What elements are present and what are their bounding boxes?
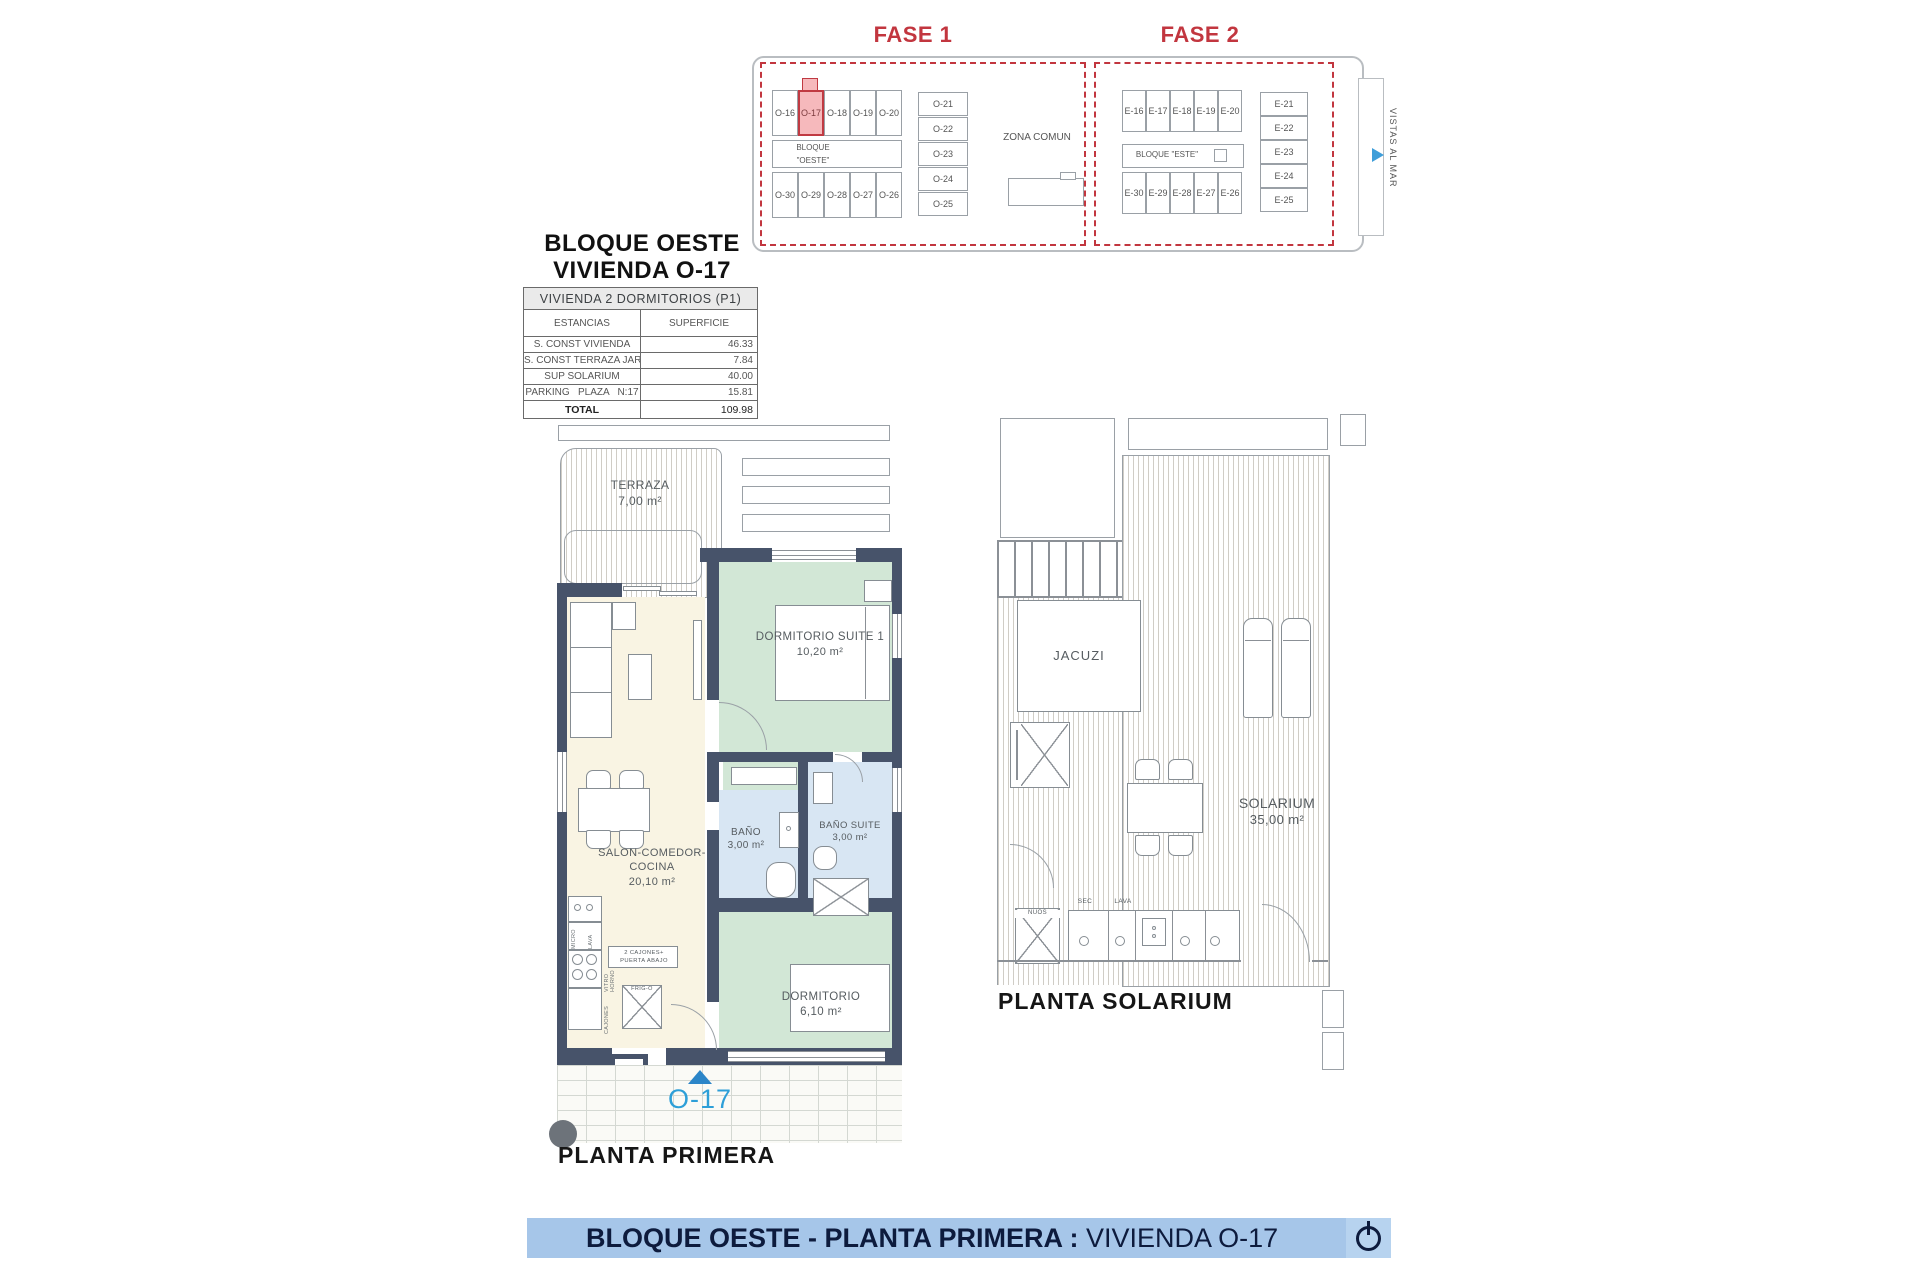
lounger-line — [1245, 640, 1271, 641]
dining-chair — [619, 770, 644, 789]
table-row: SUP SOLARIUM 40.00 — [524, 369, 758, 385]
appliance-dot — [1152, 926, 1156, 930]
site-unit-cell: E-30 — [1122, 172, 1146, 214]
site-unit-cell: E-29 — [1146, 172, 1170, 214]
zona-comun-building — [1008, 178, 1084, 206]
sliding-door — [659, 591, 697, 596]
door-gap — [707, 700, 719, 752]
page-title-line2: VIVIENDA O-17 — [530, 257, 754, 284]
site-unit-cell: E-24 — [1260, 164, 1308, 188]
walkway-bar — [558, 425, 890, 441]
table-row: S. CONST TERRAZA JARDÍN 7.84 — [524, 353, 758, 369]
unit-marker: O-17 — [660, 1084, 740, 1115]
storage-box-label: NUOS — [1015, 910, 1060, 918]
site-unit-cell: O-29 — [798, 172, 824, 218]
fase1-label: FASE 1 — [833, 22, 993, 48]
north-clock-icon — [1346, 1218, 1391, 1258]
footer-title-bold: BLOQUE OESTE - PLANTA PRIMERA — [586, 1223, 1062, 1253]
window-suite-right — [892, 614, 902, 658]
kitchen-sink-unit — [568, 896, 602, 922]
site-unit-cell: E-20 — [1218, 90, 1242, 132]
site-unit-cell: O-23 — [918, 142, 968, 166]
counter-sink — [1079, 936, 1089, 946]
hob-ring — [572, 954, 583, 965]
site-plan: FASE 1 FASE 2 O-16 O-17 O-18 O-19 O-20 B… — [740, 20, 1440, 280]
counter-divider — [1172, 910, 1173, 962]
hob-ring — [572, 969, 583, 980]
window-salon — [557, 752, 567, 812]
deck-right — [1122, 455, 1330, 987]
roof-outline — [1000, 418, 1115, 538]
vistas-al-mar-label: VISTAS AL MAR — [1388, 108, 1398, 218]
este-lift-square — [1214, 149, 1227, 162]
frigo-label: FRIG-O — [622, 986, 662, 993]
kitchen-sink-bowl — [586, 904, 593, 911]
counter-divider — [1135, 910, 1136, 962]
sliding-door — [623, 586, 661, 591]
bano-suite-label: BAÑO SUITE 3,00 m² — [807, 820, 893, 845]
kitchen-sink-bowl — [574, 904, 581, 911]
counter-divider — [1205, 910, 1206, 962]
page-title: BLOQUE OESTE VIVIENDA O-17 — [530, 230, 754, 284]
cabinet-note: 2 CAJONES+ PUERTA ABAJO — [608, 946, 678, 968]
col-superficie: SUPERFICIE — [641, 310, 758, 337]
sofa — [570, 602, 612, 738]
lava-label: LAVA — [588, 923, 594, 949]
site-unit-cell: E-23 — [1260, 140, 1308, 164]
window-bano-suite — [892, 768, 902, 812]
site-unit-cell: E-21 — [1260, 92, 1308, 116]
site-unit-cell: E-17 — [1146, 90, 1170, 132]
footer-title-unit: VIVIENDA O-17 — [1086, 1223, 1278, 1253]
wall-under-suite — [707, 752, 895, 762]
terraza-inner-outline — [564, 530, 702, 584]
site-unit-cell: O-21 — [918, 92, 968, 116]
footer-separator: : — [1062, 1223, 1086, 1253]
dining-table — [578, 788, 650, 832]
site-unit-cell: O-28 — [824, 172, 850, 218]
suite-label: DORMITORIO SUITE 1 10,20 m² — [750, 630, 890, 659]
site-unit-cell: E-18 — [1170, 90, 1194, 132]
area-table: VIVIENDA 2 DORMITORIOS (P1) ESTANCIAS SU… — [523, 287, 758, 419]
bano-suite-sink — [813, 846, 837, 870]
site-unit-cell: O-24 — [918, 167, 968, 191]
dining-chair — [586, 770, 611, 789]
page-title-line1: BLOQUE OESTE — [530, 230, 754, 257]
hob-ring — [586, 954, 597, 965]
site-unit-cell: O-18 — [824, 90, 850, 136]
site-unit-cell: O-20 — [876, 90, 902, 136]
floor-plan-primera: TERRAZA 7,00 m² — [555, 418, 915, 1188]
site-unit-cell: O-22 — [918, 117, 968, 141]
counter-divider — [1108, 910, 1109, 962]
area-table-header: VIVIENDA 2 DORMITORIOS (P1) — [524, 288, 758, 310]
site-unit-cell: E-22 — [1260, 116, 1308, 140]
planta-solarium-caption: PLANTA SOLARIUM — [998, 988, 1233, 1015]
site-unit-cell: O-27 — [850, 172, 876, 218]
site-unit-cell: O-25 — [918, 192, 968, 216]
planta-primera-caption: PLANTA PRIMERA — [558, 1142, 775, 1169]
lounger-line — [1283, 640, 1309, 641]
lower-stair-rect — [1322, 1032, 1344, 1070]
solarium-bottom-line — [997, 960, 1241, 962]
site-unit-cell: E-28 — [1170, 172, 1194, 214]
patio-chair — [1135, 759, 1160, 780]
bano-tub — [766, 862, 796, 898]
footer-banner: BLOQUE OESTE - PLANTA PRIMERA : VIVIENDA… — [527, 1218, 1391, 1258]
shower-diagonals — [1021, 724, 1068, 786]
solarium-bottom-line — [1312, 960, 1328, 962]
site-unit-cell: E-26 — [1218, 172, 1242, 214]
counter-sink — [1115, 936, 1125, 946]
solarium-label: SOLARIUM 35,00 m² — [1227, 794, 1327, 829]
fase2-label: FASE 2 — [1120, 22, 1280, 48]
bloque-oeste-label: BLOQUE "OESTE" — [772, 141, 854, 167]
closet-door — [731, 767, 797, 785]
site-unit-cell: O-16 — [772, 90, 798, 136]
sea-direction-arrow-icon — [1372, 148, 1384, 162]
bano-suite-shower — [813, 878, 869, 916]
solarium-plan: JACUZI SOLARIUM 35,00 m² NUOS SEC LAVA — [995, 412, 1415, 1032]
table-row: S. CONST VIVIENDA 46.33 — [524, 337, 758, 353]
bano-sink-dot — [786, 826, 791, 831]
micro-label: MICRO — [571, 923, 577, 949]
patio-chair — [1168, 759, 1193, 780]
roof-bar — [1128, 418, 1328, 450]
site-unit-cell: E-27 — [1194, 172, 1218, 214]
wall-mid-vertical — [707, 548, 719, 1048]
railing — [997, 540, 1122, 598]
site-unit-cell: E-16 — [1122, 90, 1146, 132]
sec-label: SEC — [1071, 898, 1099, 906]
kitchen-unit — [568, 988, 602, 1030]
stair-bar — [742, 514, 890, 532]
lava-label: LAVA — [1107, 898, 1139, 906]
site-unit-cell: O-30 — [772, 172, 798, 218]
window-suite — [772, 550, 856, 560]
counter-sink — [1180, 936, 1190, 946]
wall-under-banos — [707, 898, 902, 912]
bano-suite-toilet — [813, 772, 833, 804]
counter-sink — [1210, 936, 1220, 946]
tv-sideboard — [693, 620, 702, 700]
counter-appliance — [1142, 918, 1166, 946]
lower-stair-rect — [1322, 990, 1344, 1028]
table-row: PARKING PLAZA N:17 15.81 — [524, 385, 758, 401]
wall-left — [557, 583, 567, 1065]
sun-lounger — [1243, 618, 1273, 718]
patio-chair — [1135, 835, 1160, 856]
site-unit-cell-highlighted: O-17 — [798, 90, 824, 136]
bano-label: BAÑO 3,00 m² — [717, 826, 775, 852]
zona-comun-building-bump — [1060, 172, 1076, 180]
nightstand — [864, 580, 892, 602]
stair-bar — [742, 458, 890, 476]
shower-line — [1016, 730, 1018, 780]
coffee-table — [628, 654, 652, 700]
plan-sheet: FASE 1 FASE 2 O-16 O-17 O-18 O-19 O-20 B… — [0, 0, 1920, 1280]
appliance-dot — [1152, 934, 1156, 938]
window-dormitorio — [728, 1051, 885, 1062]
salon-label: SALON-COMEDOR-COCINA 20,10 m² — [581, 846, 723, 889]
wall-salon-top — [557, 583, 622, 597]
cajones-label: CAJONES — [604, 994, 610, 1034]
stair-bar — [742, 486, 890, 504]
col-estancias: ESTANCIAS — [524, 310, 641, 337]
zona-comun-label: ZONA COMUN — [992, 132, 1082, 143]
dormitorio-label: DORMITORIO 6,10 m² — [751, 990, 891, 1020]
table-total-row: TOTAL 109.98 — [524, 401, 758, 419]
roof-square — [1340, 414, 1366, 446]
patio-chair — [1168, 835, 1193, 856]
bloque-este-label: BLOQUE "ESTE" — [1124, 150, 1210, 159]
site-unit-cell: E-25 — [1260, 188, 1308, 212]
patio-table — [1127, 783, 1203, 833]
site-unit-cell: E-19 — [1194, 90, 1218, 132]
site-unit-cell: O-19 — [850, 90, 876, 136]
entrance-arrow-icon — [688, 1070, 712, 1084]
terraza-label: TERRAZA 7,00 m² — [580, 478, 700, 509]
hob-ring — [586, 969, 597, 980]
footer-text: BLOQUE OESTE - PLANTA PRIMERA : VIVIENDA… — [527, 1192, 1278, 1280]
jacuzzi-label: JACUZI — [1017, 648, 1141, 665]
sun-lounger — [1281, 618, 1311, 718]
site-unit-cell: O-26 — [876, 172, 902, 218]
sofa-arm — [612, 602, 636, 630]
